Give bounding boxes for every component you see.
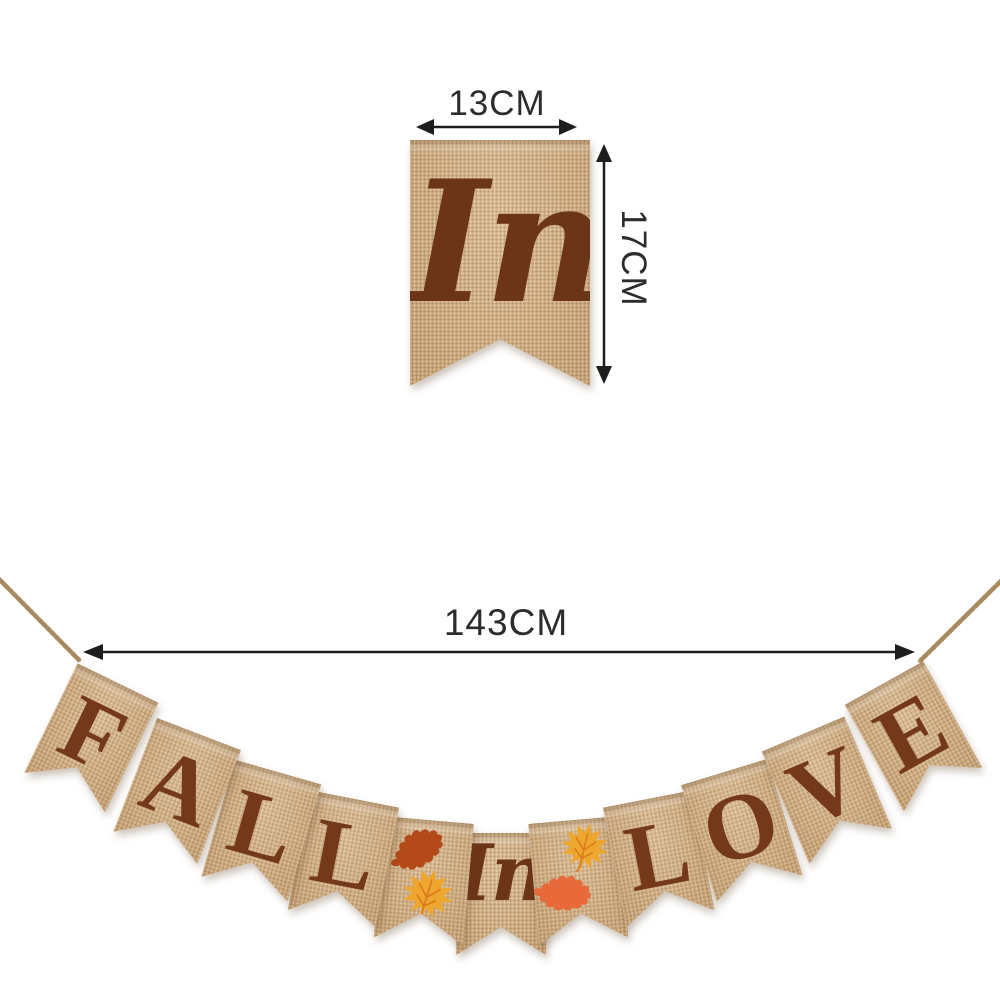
detail-pennant: In [410,140,590,386]
banner-pennant: L [603,790,715,927]
height-dimension-arrow [596,144,612,384]
pennant-letter: F [32,672,154,796]
banner-pennant-wrap: F [0,0,1000,1000]
detail-script-text: In [410,158,590,326]
banner-pennant: V [762,716,893,863]
banner-pennant-wrap: L [0,0,1000,1000]
pennant-letter: L [291,800,397,909]
banner-pennant: E [845,661,983,811]
dimension-arrows [0,0,1000,1000]
banner-pennant-wrap: O [0,0,1000,1000]
oak-leaf-icon [532,870,597,913]
twine-right [920,579,1000,661]
pennant-width-label: 13CM [448,84,545,124]
banner-pennant: O [681,759,803,902]
banner-pennant: A [113,718,241,864]
pennant-height-label: 17CM [613,209,653,306]
banner-pennant: F [24,663,158,812]
banner-pennant-wrap: In [0,0,1000,1000]
pennant-letter: L [206,769,318,884]
pennant-letter: V [765,726,885,848]
banner-pennant-wrap: V [0,0,1000,1000]
maple-leaf-icon [553,816,615,878]
twine-string [0,0,1000,1000]
banner-pennant-wrap: L [0,0,1000,1000]
length-dimension-arrow [83,644,915,660]
banner-pennant-wrap [0,0,1000,1000]
pennant-letter: A [120,727,238,847]
banner-pennant-wrap: A [0,0,1000,1000]
banner-pennant-wrap: E [0,0,1000,1000]
banner-pennant: L [201,760,321,902]
pennant-letter: O [684,768,798,884]
pennant-letter: L [605,800,711,909]
detail-pennant-wrap: In [0,0,1000,1000]
pennant-letter: E [849,670,973,796]
banner-pennant [528,816,628,945]
oak-leaf-icon [379,813,456,883]
banner-length-label: 143CM [444,602,568,644]
twine-left [0,577,80,661]
banner-pennant: L [288,790,400,927]
banner-pennant-wrap: L [0,0,1000,1000]
pennant-script-text: In [456,835,546,913]
banner-pennant: In [456,833,546,955]
banner-pennant-wrap [0,0,1000,1000]
banner-pennant [374,816,474,945]
product-dimension-image: 13CM 17CM In 143CM FALLInLOVE [0,0,1000,1000]
maple-leaf-icon [393,859,463,929]
